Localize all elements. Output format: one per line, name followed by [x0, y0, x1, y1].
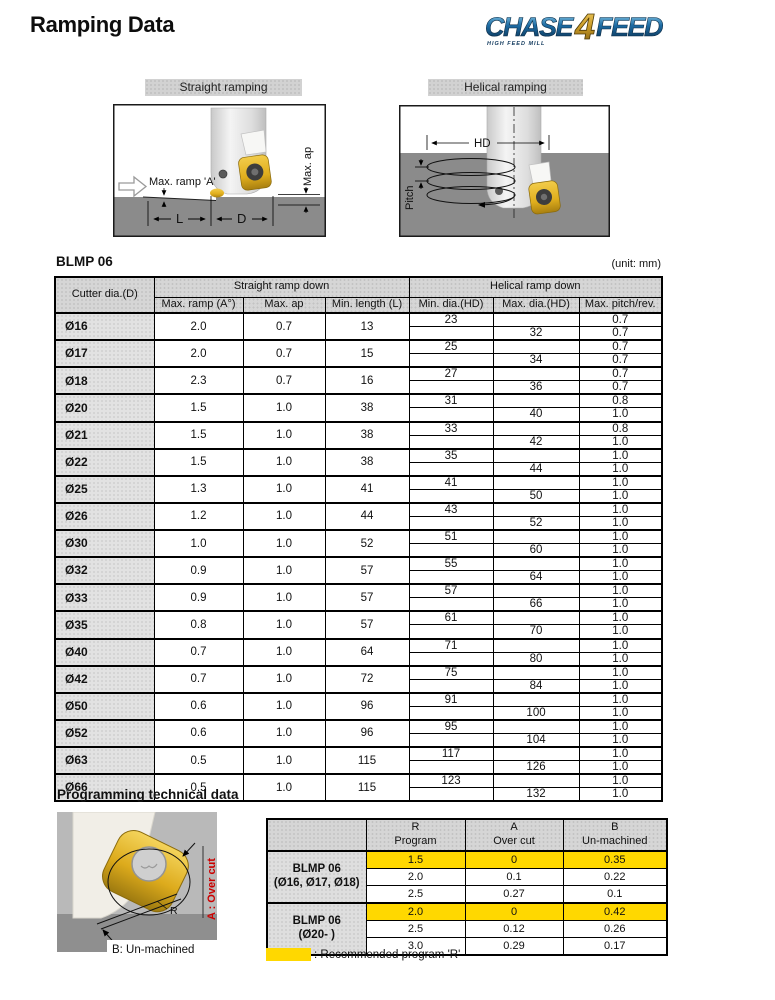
insert-photo: R A : Over cut B: Un-machined — [57, 812, 217, 960]
unmachined-label: B: Un-machined — [112, 944, 194, 956]
prog-col-r: R Program — [366, 819, 465, 851]
max-ap-cell: 1.0 — [243, 394, 325, 421]
dim-HD-label: HD — [474, 138, 491, 150]
pitch-top-cell: 1.0 — [579, 557, 662, 571]
min-length-cell: 57 — [325, 557, 409, 584]
min-dia-cell: 51 — [409, 530, 493, 544]
pitch-top-cell: 0.7 — [579, 313, 662, 327]
max-ramp-cell: 0.5 — [154, 747, 243, 774]
min-dia-cell: 75 — [409, 666, 493, 680]
pitch-bottom-cell: 1.0 — [579, 435, 662, 449]
cutter-dia-cell: Ø21 — [55, 422, 154, 449]
max-dia-cell: 100 — [493, 706, 579, 720]
insert-clamp — [241, 130, 266, 155]
empty-cell — [493, 584, 579, 598]
milling-tool — [210, 108, 272, 198]
col-header-min-length: Min. length (L) — [325, 297, 409, 313]
pitch-bottom-cell: 1.0 — [579, 652, 662, 666]
max-ramp-cell: 0.7 — [154, 639, 243, 666]
r-label: R — [170, 905, 178, 917]
pitch-bottom-cell: 1.0 — [579, 706, 662, 720]
pitch-top-cell: 1.0 — [579, 693, 662, 707]
empty-cell — [493, 367, 579, 381]
pitch-top-cell: 1.0 — [579, 720, 662, 734]
legend-swatch — [266, 948, 311, 961]
min-dia-cell: 123 — [409, 774, 493, 788]
cutter-dia-cell: Ø40 — [55, 639, 154, 666]
over-cut-cell: 0.29 — [465, 938, 563, 956]
max-ap-cell: 1.0 — [243, 530, 325, 557]
min-length-cell: 57 — [325, 584, 409, 611]
min-length-cell: 96 — [325, 693, 409, 720]
cutter-dia-cell: Ø22 — [55, 449, 154, 476]
empty-cell — [493, 557, 579, 571]
helical-ramping-diagram: HD Pitch — [399, 105, 610, 237]
col-header-max-ap: Max. ap — [243, 297, 325, 313]
min-dia-cell: 71 — [409, 639, 493, 653]
page-title: Ramping Data — [30, 12, 174, 38]
max-dia-cell: 34 — [493, 354, 579, 368]
dim-D-label: D — [237, 211, 246, 226]
max-ramp-cell: 2.0 — [154, 340, 243, 367]
pitch-bottom-cell: 0.7 — [579, 381, 662, 395]
min-length-cell: 38 — [325, 422, 409, 449]
empty-cell — [409, 435, 493, 449]
empty-cell — [409, 571, 493, 585]
pitch-bottom-cell: 1.0 — [579, 679, 662, 693]
min-length-cell: 13 — [325, 313, 409, 340]
dim-L-label: L — [176, 211, 183, 226]
pitch-bottom-cell: 0.7 — [579, 354, 662, 368]
min-length-cell: 44 — [325, 503, 409, 530]
empty-cell — [409, 706, 493, 720]
max-ramp-cell: 0.8 — [154, 611, 243, 638]
prog-col-b-line1: B — [564, 821, 667, 835]
prog-corner-cell — [267, 819, 366, 851]
pitch-top-cell: 1.0 — [579, 774, 662, 788]
empty-cell — [493, 530, 579, 544]
min-length-cell: 41 — [325, 476, 409, 503]
prog-col-a-line1: A — [466, 821, 563, 835]
max-ramp-cell: 0.9 — [154, 557, 243, 584]
ramping-data-table: Cutter dia.(D) Straight ramp down Helica… — [54, 276, 663, 802]
pitch-top-cell: 1.0 — [579, 530, 662, 544]
max-ramp-label: Max. ramp 'A' — [149, 176, 216, 188]
max-ap-cell: 1.0 — [243, 720, 325, 747]
insert-clamp — [529, 162, 551, 184]
un-machined-cell: 0.1 — [563, 886, 667, 904]
pitch-top-cell: 0.8 — [579, 422, 662, 436]
workpiece-ground — [113, 197, 326, 237]
max-ramp-cell: 2.3 — [154, 367, 243, 394]
min-length-cell: 38 — [325, 449, 409, 476]
programming-heading: Programming technical data — [57, 787, 239, 802]
empty-cell — [409, 516, 493, 530]
legend-text: : Recommended program 'R' — [314, 949, 460, 961]
empty-cell — [409, 761, 493, 775]
min-dia-cell: 57 — [409, 584, 493, 598]
max-ap-cell: 1.0 — [243, 476, 325, 503]
empty-cell — [493, 747, 579, 761]
min-dia-cell: 23 — [409, 313, 493, 327]
empty-cell — [409, 679, 493, 693]
logo-text-feed: FEED — [596, 12, 663, 42]
r-program-cell: 2.0 — [366, 903, 465, 921]
pitch-bottom-cell: 1.0 — [579, 489, 662, 503]
col-header-min-dia: Min. dia.(HD) — [409, 297, 493, 313]
cutter-dia-cell: Ø33 — [55, 584, 154, 611]
insert-right — [238, 154, 272, 191]
max-dia-cell: 64 — [493, 571, 579, 585]
empty-cell — [493, 639, 579, 653]
max-ap-cell: 1.0 — [243, 774, 325, 801]
max-ramp-cell: 1.5 — [154, 394, 243, 421]
min-length-cell: 52 — [325, 530, 409, 557]
empty-cell — [409, 652, 493, 666]
page: Ramping Data CHASE 4 FEED HIGH FEED MILL… — [0, 0, 775, 1000]
helical-ramping-label: Helical ramping — [428, 79, 583, 96]
un-machined-cell: 0.42 — [563, 903, 667, 921]
max-dia-cell: 80 — [493, 652, 579, 666]
logo-text-chase: CHASE — [485, 12, 575, 42]
empty-cell — [409, 544, 493, 558]
min-length-cell: 38 — [325, 394, 409, 421]
cutter-dia-cell: Ø35 — [55, 611, 154, 638]
max-ramp-cell: 1.5 — [154, 422, 243, 449]
max-dia-cell: 126 — [493, 761, 579, 775]
empty-cell — [493, 611, 579, 625]
empty-cell — [409, 408, 493, 422]
overcut-label: A : Over cut — [206, 858, 217, 920]
col-header-max-dia: Max. dia.(HD) — [493, 297, 579, 313]
empty-cell — [493, 449, 579, 463]
max-ramp-cell: 1.5 — [154, 449, 243, 476]
straight-ramping-diagram: Max. ramp 'A' L D Max. ap — [113, 104, 326, 237]
over-cut-cell: 0.12 — [465, 921, 563, 938]
pitch-bottom-cell: 1.0 — [579, 761, 662, 775]
straight-ramping-label: Straight ramping — [145, 79, 302, 96]
max-ap-cell: 1.0 — [243, 747, 325, 774]
empty-cell — [409, 381, 493, 395]
col-header-cutter-dia: Cutter dia.(D) — [55, 277, 154, 313]
pitch-bottom-cell: 1.0 — [579, 408, 662, 422]
pitch-bottom-cell: 0.7 — [579, 327, 662, 341]
group-header-straight: Straight ramp down — [154, 277, 409, 297]
brand-logo: CHASE 4 FEED HIGH FEED MILL — [483, 8, 688, 50]
cutter-dia-cell: Ø42 — [55, 666, 154, 693]
max-ap-label: Max. ap — [302, 147, 314, 186]
max-ramp-cell: 1.2 — [154, 503, 243, 530]
insert-screw — [132, 847, 166, 881]
over-cut-cell: 0 — [465, 903, 563, 921]
empty-cell — [409, 462, 493, 476]
pitch-top-cell: 0.8 — [579, 394, 662, 408]
max-ap-cell: 1.0 — [243, 666, 325, 693]
prog-col-r-line2: Program — [367, 835, 465, 849]
programming-table: R Program A Over cut B Un-machined BLMP … — [266, 818, 668, 956]
min-length-cell: 15 — [325, 340, 409, 367]
logo-text-4: 4 — [574, 8, 595, 47]
min-dia-cell: 117 — [409, 747, 493, 761]
min-length-cell: 115 — [325, 747, 409, 774]
pitch-label: Pitch — [404, 186, 416, 210]
max-ap-cell: 0.7 — [243, 313, 325, 340]
empty-cell — [493, 394, 579, 408]
cutter-dia-cell: Ø32 — [55, 557, 154, 584]
insert-left — [210, 189, 224, 198]
min-dia-cell: 31 — [409, 394, 493, 408]
cutter-dia-cell: Ø17 — [55, 340, 154, 367]
pitch-bottom-cell: 1.0 — [579, 788, 662, 802]
pitch-bottom-cell: 1.0 — [579, 733, 662, 747]
cutter-dia-cell: Ø50 — [55, 693, 154, 720]
empty-cell — [493, 313, 579, 327]
over-cut-cell: 0.1 — [465, 869, 563, 886]
cutter-dia-cell: Ø63 — [55, 747, 154, 774]
max-ap-cell: 1.0 — [243, 639, 325, 666]
min-dia-cell: 61 — [409, 611, 493, 625]
pitch-top-cell: 0.7 — [579, 340, 662, 354]
empty-cell — [493, 422, 579, 436]
min-dia-cell: 95 — [409, 720, 493, 734]
min-dia-cell: 33 — [409, 422, 493, 436]
pitch-bottom-cell: 1.0 — [579, 544, 662, 558]
group-header-helical: Helical ramp down — [409, 277, 662, 297]
max-ap-cell: 1.0 — [243, 611, 325, 638]
prog-col-a-line2: Over cut — [466, 835, 563, 849]
min-dia-cell: 35 — [409, 449, 493, 463]
cutter-dia-cell: Ø16 — [55, 313, 154, 340]
r-program-cell: 2.0 — [366, 869, 465, 886]
unit-note: (unit: mm) — [54, 258, 661, 270]
max-ap-cell: 1.0 — [243, 557, 325, 584]
cutter-dia-cell: Ø26 — [55, 503, 154, 530]
pitch-top-cell: 0.7 — [579, 367, 662, 381]
pitch-top-cell: 1.0 — [579, 503, 662, 517]
max-ap-cell: 1.0 — [243, 449, 325, 476]
min-length-cell: 16 — [325, 367, 409, 394]
max-dia-cell: 50 — [493, 489, 579, 503]
empty-cell — [409, 354, 493, 368]
r-program-cell: 1.5 — [366, 851, 465, 869]
max-dia-cell: 84 — [493, 679, 579, 693]
empty-cell — [493, 720, 579, 734]
cutter-dia-cell: Ø18 — [55, 367, 154, 394]
logo-subtext: HIGH FEED MILL — [487, 41, 545, 47]
max-ramp-cell: 0.9 — [154, 584, 243, 611]
max-dia-cell: 44 — [493, 462, 579, 476]
block-arrow-icon — [119, 177, 146, 196]
min-dia-cell: 27 — [409, 367, 493, 381]
min-length-cell: 64 — [325, 639, 409, 666]
cutter-dia-cell: Ø20 — [55, 394, 154, 421]
max-dia-cell: 60 — [493, 544, 579, 558]
pitch-top-cell: 1.0 — [579, 449, 662, 463]
pitch-bottom-cell: 1.0 — [579, 571, 662, 585]
empty-cell — [409, 733, 493, 747]
un-machined-cell: 0.22 — [563, 869, 667, 886]
r-program-cell: 2.5 — [366, 886, 465, 904]
empty-cell — [493, 503, 579, 517]
cutter-dia-cell: Ø52 — [55, 720, 154, 747]
col-header-max-pitch: Max. pitch/rev. — [579, 297, 662, 313]
pitch-top-cell: 1.0 — [579, 747, 662, 761]
max-ap-cell: 1.0 — [243, 422, 325, 449]
prog-col-b: B Un-machined — [563, 819, 667, 851]
empty-cell — [493, 476, 579, 490]
un-machined-cell: 0.35 — [563, 851, 667, 869]
empty-cell — [409, 788, 493, 802]
empty-cell — [493, 693, 579, 707]
max-dia-cell: 32 — [493, 327, 579, 341]
pitch-top-cell: 1.0 — [579, 476, 662, 490]
max-dia-cell: 66 — [493, 598, 579, 612]
max-ap-cell: 1.0 — [243, 693, 325, 720]
pitch-top-cell: 1.0 — [579, 639, 662, 653]
max-ramp-cell: 0.6 — [154, 693, 243, 720]
min-dia-cell: 43 — [409, 503, 493, 517]
max-ap-cell: 0.7 — [243, 367, 325, 394]
empty-cell — [409, 625, 493, 639]
pitch-bottom-cell: 1.0 — [579, 625, 662, 639]
un-machined-cell: 0.26 — [563, 921, 667, 938]
empty-cell — [493, 774, 579, 788]
over-cut-cell: 0.27 — [465, 886, 563, 904]
max-dia-cell: 40 — [493, 408, 579, 422]
r-program-cell: 2.5 — [366, 921, 465, 938]
over-cut-cell: 0 — [465, 851, 563, 869]
legend: : Recommended program 'R' — [266, 948, 460, 961]
cutter-dia-cell: Ø30 — [55, 530, 154, 557]
pitch-top-cell: 1.0 — [579, 611, 662, 625]
empty-cell — [493, 666, 579, 680]
max-ramp-cell: 1.0 — [154, 530, 243, 557]
prog-col-a: A Over cut — [465, 819, 563, 851]
pitch-bottom-cell: 1.0 — [579, 462, 662, 476]
max-ap-cell: 1.0 — [243, 503, 325, 530]
min-dia-cell: 55 — [409, 557, 493, 571]
max-ramp-cell: 0.6 — [154, 720, 243, 747]
prog-col-b-line2: Un-machined — [564, 835, 667, 849]
max-dia-cell: 70 — [493, 625, 579, 639]
max-dia-cell: 36 — [493, 381, 579, 395]
empty-cell — [409, 489, 493, 503]
min-dia-cell: 91 — [409, 693, 493, 707]
min-length-cell: 57 — [325, 611, 409, 638]
max-ramp-cell: 0.7 — [154, 666, 243, 693]
prog-col-r-line1: R — [367, 821, 465, 835]
max-dia-cell: 104 — [493, 733, 579, 747]
pitch-top-cell: 1.0 — [579, 666, 662, 680]
max-ramp-cell: 1.3 — [154, 476, 243, 503]
cutter-dia-cell: Ø25 — [55, 476, 154, 503]
empty-cell — [409, 327, 493, 341]
max-dia-cell: 132 — [493, 788, 579, 802]
max-ap-cell: 0.7 — [243, 340, 325, 367]
pitch-top-cell: 1.0 — [579, 584, 662, 598]
max-dia-cell: 42 — [493, 435, 579, 449]
pitch-bottom-cell: 1.0 — [579, 598, 662, 612]
max-dia-cell: 52 — [493, 516, 579, 530]
max-ap-cell: 1.0 — [243, 584, 325, 611]
min-length-cell: 96 — [325, 720, 409, 747]
prog-group-label: BLMP 06(Ø16, Ø17, Ø18) — [267, 851, 366, 903]
empty-cell — [409, 598, 493, 612]
insert — [528, 180, 561, 215]
col-header-max-ramp: Max. ramp (A°) — [154, 297, 243, 313]
side-screw — [219, 170, 227, 178]
min-dia-cell: 41 — [409, 476, 493, 490]
unmachined-label-box: B: Un-machined — [107, 940, 217, 957]
min-length-cell: 72 — [325, 666, 409, 693]
empty-cell — [493, 340, 579, 354]
max-ramp-cell: 2.0 — [154, 313, 243, 340]
pitch-bottom-cell: 1.0 — [579, 516, 662, 530]
un-machined-cell: 0.17 — [563, 938, 667, 956]
min-dia-cell: 25 — [409, 340, 493, 354]
min-length-cell: 115 — [325, 774, 409, 801]
